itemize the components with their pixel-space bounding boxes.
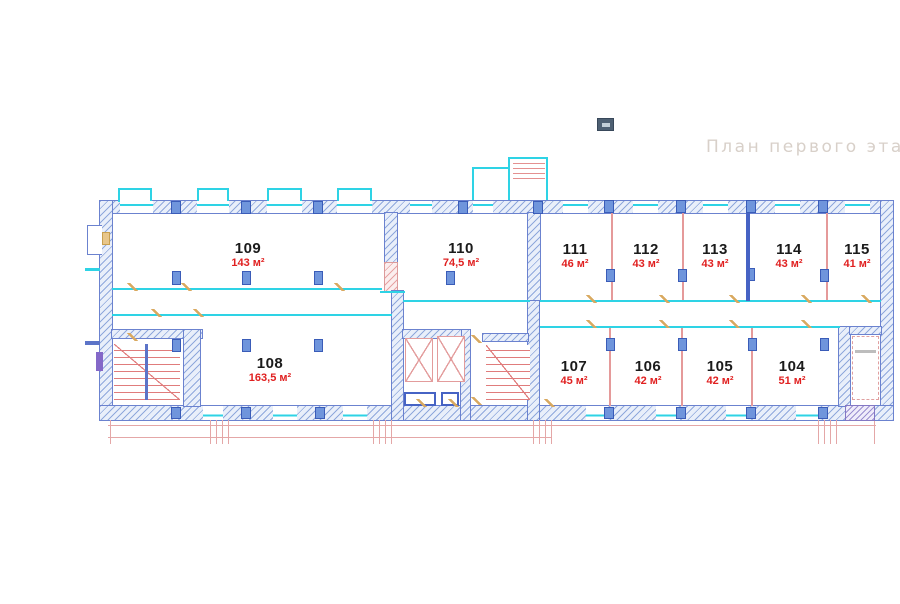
door <box>585 295 598 303</box>
window <box>473 201 493 213</box>
bay-window <box>267 188 302 202</box>
room-label-108: 108 163,5 м² <box>235 356 305 384</box>
floor-plan-canvas: План первого этажа 109 143 м² 110 74,5 м… <box>0 0 900 604</box>
entrance-steps <box>513 162 545 179</box>
window <box>796 406 818 420</box>
dimension-tick <box>222 420 223 444</box>
room-area: 42 м² <box>613 376 683 388</box>
room-label-106: 106 42 м² <box>613 359 683 387</box>
column <box>315 407 325 419</box>
door <box>658 320 671 328</box>
column <box>678 269 687 282</box>
room-number: 110 <box>426 241 496 257</box>
column <box>748 338 757 351</box>
bay-window <box>118 188 152 202</box>
column <box>242 271 251 285</box>
column <box>533 201 543 214</box>
room-area: 46 м² <box>540 259 610 271</box>
dimension-tick <box>545 420 546 444</box>
dimension-tick <box>391 420 392 444</box>
column <box>746 407 756 419</box>
column <box>818 200 828 213</box>
door <box>585 320 598 328</box>
dimension-line <box>108 425 876 426</box>
door <box>470 335 483 343</box>
window <box>845 201 870 213</box>
room-number: 113 <box>680 242 750 258</box>
dimension-tick <box>110 420 111 444</box>
column <box>241 407 251 419</box>
window <box>337 201 372 213</box>
dimension-tick <box>874 420 875 444</box>
column <box>314 271 323 285</box>
room-area: 42 м² <box>685 376 755 388</box>
column <box>606 338 615 351</box>
window <box>633 201 658 213</box>
room-area: 41 м² <box>822 259 892 271</box>
room-area: 51 м² <box>757 376 827 388</box>
stair-flight <box>486 345 530 400</box>
entrance-niche <box>87 225 102 255</box>
door <box>333 283 346 291</box>
dimension-tick <box>824 420 825 444</box>
window <box>273 406 297 420</box>
dimension-tick <box>385 420 386 444</box>
room-number: 111 <box>540 242 610 258</box>
door-leaf <box>102 232 110 245</box>
door <box>126 333 139 341</box>
dimension-tick <box>836 420 837 444</box>
room-number: 105 <box>685 359 755 375</box>
room-label-112: 112 43 м² <box>611 242 681 270</box>
dimension-tick <box>551 420 552 444</box>
door <box>415 399 428 407</box>
core-wall-left <box>392 291 403 420</box>
door <box>180 283 193 291</box>
divider-wall-109-110-lower <box>385 263 397 291</box>
wall-tick <box>85 268 100 271</box>
corridor-line <box>380 291 405 293</box>
wall-tick <box>85 341 100 345</box>
bay-window <box>337 188 372 202</box>
room-label-104: 104 51 м² <box>757 359 827 387</box>
divider-wall-109-110 <box>385 213 397 263</box>
window <box>775 201 800 213</box>
room-label-113: 113 43 м² <box>680 242 750 270</box>
door <box>470 397 483 405</box>
column <box>820 338 829 351</box>
column <box>458 201 468 214</box>
dimension-tick <box>228 420 229 444</box>
column <box>746 200 756 213</box>
stairwell-wall-right <box>184 330 200 406</box>
room-number: 114 <box>754 242 824 258</box>
window <box>343 406 367 420</box>
entrance-porch <box>472 167 510 200</box>
column <box>242 339 251 352</box>
room-number: 104 <box>757 359 827 375</box>
room-label-110: 110 74,5 м² <box>426 241 496 269</box>
bottom-wall-purple-block <box>846 406 874 420</box>
door <box>728 320 741 328</box>
technical-room <box>852 336 879 400</box>
stair-divider <box>145 344 148 400</box>
elevator-shaft <box>405 338 433 382</box>
room-label-107: 107 45 м² <box>539 359 609 387</box>
window <box>197 201 229 213</box>
column <box>820 269 829 282</box>
dimension-tick <box>533 420 534 444</box>
room-number: 109 <box>213 241 283 257</box>
dimension-tick <box>539 420 540 444</box>
window <box>563 201 588 213</box>
dimension-tick <box>210 420 211 444</box>
door <box>728 295 741 303</box>
door <box>447 399 460 407</box>
window <box>267 201 302 213</box>
door <box>192 309 205 317</box>
door <box>860 295 873 303</box>
window <box>703 201 728 213</box>
door <box>126 283 139 291</box>
small-room-label <box>855 350 876 353</box>
column <box>171 407 181 419</box>
room-area: 74,5 м² <box>426 258 496 270</box>
room-number: 115 <box>822 242 892 258</box>
dimension-tick <box>818 420 819 444</box>
column <box>172 339 181 352</box>
small-room-wall-top <box>850 327 881 334</box>
dimension-tick <box>830 420 831 444</box>
corridor-line <box>403 300 530 302</box>
dimension-line <box>108 437 552 438</box>
room-label-109: 109 143 м² <box>213 241 283 269</box>
dimension-tick <box>373 420 374 444</box>
door <box>543 399 556 407</box>
column <box>818 407 828 419</box>
room-area: 43 м² <box>611 259 681 271</box>
room-label-105: 105 42 м² <box>685 359 755 387</box>
door <box>800 320 813 328</box>
room-label-114: 114 43 м² <box>754 242 824 270</box>
room-number: 106 <box>613 359 683 375</box>
dimension-tick <box>216 420 217 444</box>
room-area: 163,5 м² <box>235 373 305 385</box>
outer-wall-right <box>881 201 893 420</box>
room-label-111: 111 46 м² <box>540 242 610 270</box>
door <box>658 295 671 303</box>
core-wall-left-upper <box>528 213 540 301</box>
window <box>656 406 678 420</box>
room-number: 108 <box>235 356 305 372</box>
room-number: 112 <box>611 242 681 258</box>
small-room-wall-left <box>839 327 850 406</box>
window <box>203 406 223 420</box>
column <box>676 200 686 213</box>
core-stair-top-wall <box>483 334 528 341</box>
panel-toggle-icon-glyph <box>602 123 610 127</box>
column <box>604 407 614 419</box>
plan-title: План первого этажа <box>706 137 900 157</box>
room-area: 43 м² <box>680 259 750 271</box>
column <box>446 271 455 285</box>
column <box>314 339 323 352</box>
door <box>800 295 813 303</box>
side-door <box>96 352 103 371</box>
window <box>726 406 748 420</box>
window <box>410 201 432 213</box>
dimension-tick <box>379 420 380 444</box>
window <box>120 201 153 213</box>
column <box>241 201 251 214</box>
elevator-shaft <box>437 336 465 382</box>
column <box>313 201 323 214</box>
room-area: 43 м² <box>754 259 824 271</box>
column <box>606 269 615 282</box>
room-number: 107 <box>539 359 609 375</box>
column <box>678 338 687 351</box>
panel-toggle-icon[interactable] <box>597 118 614 131</box>
door <box>150 309 163 317</box>
column <box>604 200 614 213</box>
room-label-115: 115 41 м² <box>822 242 892 270</box>
column <box>171 201 181 214</box>
column <box>676 407 686 419</box>
bay-window <box>197 188 229 202</box>
room-area: 45 м² <box>539 376 609 388</box>
room-area: 143 м² <box>213 258 283 270</box>
